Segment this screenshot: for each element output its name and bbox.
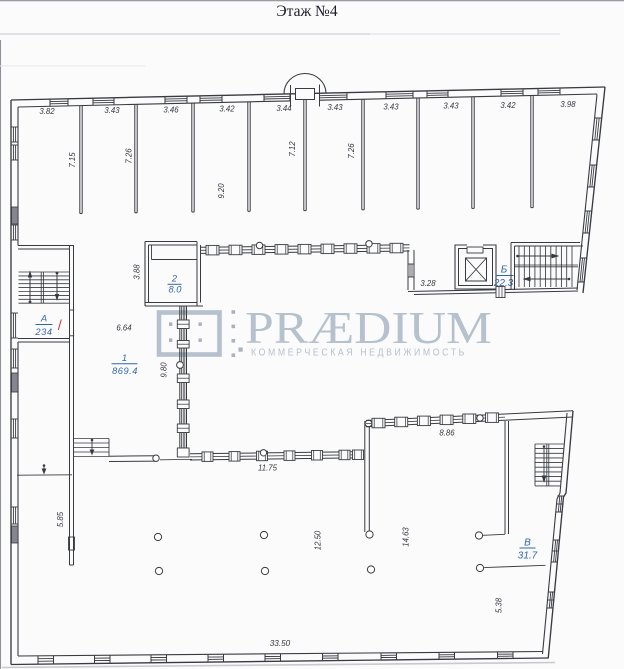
svg-text:1: 1 bbox=[122, 353, 127, 363]
svg-text:14.63: 14.63 bbox=[402, 527, 411, 547]
svg-text:3.43: 3.43 bbox=[327, 103, 343, 112]
svg-text:3.82: 3.82 bbox=[39, 107, 55, 116]
svg-text:Б: Б bbox=[501, 265, 508, 276]
svg-text:11.75: 11.75 bbox=[258, 464, 278, 473]
svg-text:3.43: 3.43 bbox=[104, 106, 120, 115]
svg-text:3.43: 3.43 bbox=[383, 103, 399, 112]
svg-text:7.26: 7.26 bbox=[347, 143, 356, 159]
svg-text:7.12: 7.12 bbox=[288, 141, 297, 157]
svg-text:3.42: 3.42 bbox=[500, 101, 516, 110]
svg-text:7.26: 7.26 bbox=[125, 148, 134, 164]
svg-text:А: А bbox=[40, 314, 47, 324]
svg-text:3.46: 3.46 bbox=[163, 105, 179, 114]
svg-text:6.64: 6.64 bbox=[116, 324, 132, 333]
svg-text:869.4: 869.4 bbox=[112, 366, 138, 376]
svg-text:5.38: 5.38 bbox=[495, 597, 504, 613]
svg-text:9.20: 9.20 bbox=[217, 183, 226, 199]
svg-text:КОММЕРЧЕСКАЯ НЕДВИЖИМОСТЬ: КОММЕРЧЕСКАЯ НЕДВИЖИМОСТЬ bbox=[251, 348, 467, 359]
svg-text:3.98: 3.98 bbox=[560, 100, 576, 109]
svg-text:9.80: 9.80 bbox=[160, 362, 169, 378]
svg-text:8.0: 8.0 bbox=[169, 285, 183, 295]
svg-text:31.7: 31.7 bbox=[518, 551, 538, 562]
svg-text:PRÆDIUM: PRÆDIUM bbox=[245, 302, 492, 353]
svg-text:234: 234 bbox=[34, 327, 52, 337]
svg-text:В: В bbox=[524, 538, 531, 549]
svg-text:8.86: 8.86 bbox=[439, 429, 455, 438]
svg-text:3.44: 3.44 bbox=[276, 104, 292, 113]
svg-text:3.88: 3.88 bbox=[133, 264, 142, 280]
svg-text:7.15: 7.15 bbox=[68, 152, 77, 168]
svg-text:33.50: 33.50 bbox=[270, 639, 291, 648]
svg-text:3.28: 3.28 bbox=[420, 279, 436, 288]
svg-text:12.50: 12.50 bbox=[314, 530, 323, 550]
svg-text:2: 2 bbox=[171, 274, 178, 284]
svg-text:3.42: 3.42 bbox=[219, 105, 235, 114]
svg-text:3.43: 3.43 bbox=[443, 102, 459, 111]
svg-text:5.85: 5.85 bbox=[56, 511, 65, 527]
svg-text:Этаж №4: Этаж №4 bbox=[276, 3, 337, 20]
